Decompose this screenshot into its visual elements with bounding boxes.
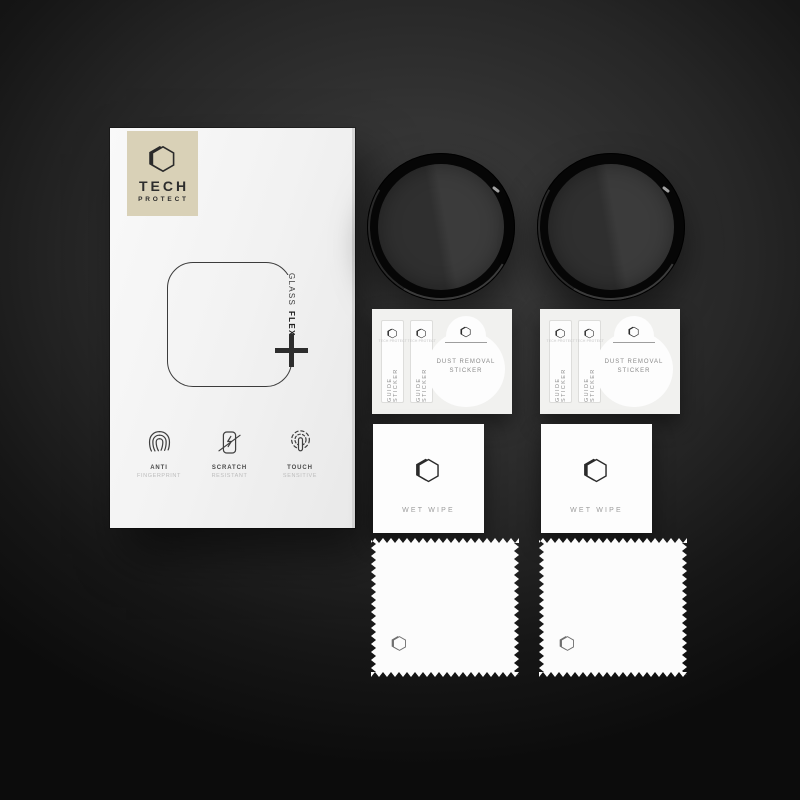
hexagon-logo-icon [416, 326, 427, 337]
divider-line [613, 342, 655, 343]
guide-sticker-label: GUIDE STICKER [416, 343, 428, 402]
guide-sticker-label: GUIDE STICKER [584, 343, 596, 402]
wet-wipe-1: WET WIPE [373, 424, 484, 533]
hexagon-logo-icon [628, 325, 640, 337]
microfiber-cloth-2 [539, 538, 687, 677]
feature-row: ANTI FINGERPRINT SCRATCH RESISTANT TOU [126, 427, 333, 479]
screen-protector-1 [367, 153, 515, 301]
microfiber-cloth-1 [371, 538, 519, 677]
techprotect-hexagon-logo-icon [148, 144, 178, 174]
dust-removal-label: DUST REMOVAL [605, 358, 664, 367]
scratch-resistant-icon [214, 427, 245, 458]
guide-sticker-label: GUIDE STICKER [555, 343, 567, 402]
feature-subtitle: FINGERPRINT [137, 473, 181, 479]
protector-glass [548, 164, 674, 290]
feature-subtitle: RESISTANT [212, 473, 248, 479]
feature-title: ANTI [150, 465, 168, 471]
product-photo: TECH PROTECT GLASS FLEX ANTI [0, 0, 800, 800]
series-name-vertical: GLASS FLEX [283, 275, 300, 335]
brand-name: TECH [139, 178, 189, 194]
feature-subtitle: SENSITIVE [283, 473, 317, 479]
hexagon-logo-icon [415, 457, 442, 484]
plus-icon [275, 334, 308, 367]
wet-wipe-2: WET WIPE [541, 424, 652, 533]
hexagon-logo-icon [391, 635, 408, 652]
series-word-glass: GLASS [287, 273, 296, 306]
sticker-card-2: TECH PROTECT GUIDE STICKER TECH PROTECT … [540, 309, 680, 414]
screen-protector-2 [537, 153, 685, 301]
dust-removal-label: STICKER [449, 367, 482, 376]
wet-wipe-label: WET WIPE [402, 507, 455, 514]
dust-removal-label: DUST REMOVAL [437, 358, 496, 367]
hexagon-logo-icon [460, 325, 472, 337]
feature-scratch-resistant: SCRATCH RESISTANT [197, 427, 263, 479]
wet-wipe-label: WET WIPE [570, 507, 623, 514]
watch-face-outline: GLASS FLEX [167, 262, 292, 387]
brand-plate: TECH PROTECT [127, 131, 198, 216]
touch-sensitive-icon [285, 427, 316, 458]
guide-sticker: TECH PROTECT GUIDE STICKER [549, 320, 572, 403]
guide-sticker: TECH PROTECT GUIDE STICKER [381, 320, 404, 403]
guide-sticker-label: GUIDE STICKER [387, 343, 399, 402]
hexagon-logo-icon [559, 635, 576, 652]
protector-etch-mark [492, 186, 500, 193]
micro-brand-text: TECH PROTECT [546, 338, 574, 342]
feature-anti-fingerprint: ANTI FINGERPRINT [126, 427, 192, 479]
sticker-card-1: TECH PROTECT GUIDE STICKER TECH PROTECT … [372, 309, 512, 414]
divider-line [445, 342, 487, 343]
brand-subname: PROTECT [138, 196, 189, 203]
hexagon-logo-icon [387, 326, 398, 337]
micro-brand-text: TECH PROTECT [378, 338, 406, 342]
feature-touch-sensitive: TOUCH SENSITIVE [267, 427, 333, 479]
dust-removal-label: STICKER [617, 367, 650, 376]
protector-etch-mark [662, 186, 670, 193]
dust-removal-sticker: DUST REMOVAL STICKER [595, 316, 673, 407]
hexagon-logo-icon [584, 326, 595, 337]
hexagon-logo-icon [555, 326, 566, 337]
retail-box: TECH PROTECT GLASS FLEX ANTI [110, 128, 355, 528]
protector-glass [378, 164, 504, 290]
feature-title: TOUCH [287, 465, 313, 471]
dust-removal-sticker: DUST REMOVAL STICKER [427, 316, 505, 407]
feature-title: SCRATCH [212, 465, 247, 471]
fingerprint-icon [144, 427, 175, 458]
hexagon-logo-icon [583, 457, 610, 484]
